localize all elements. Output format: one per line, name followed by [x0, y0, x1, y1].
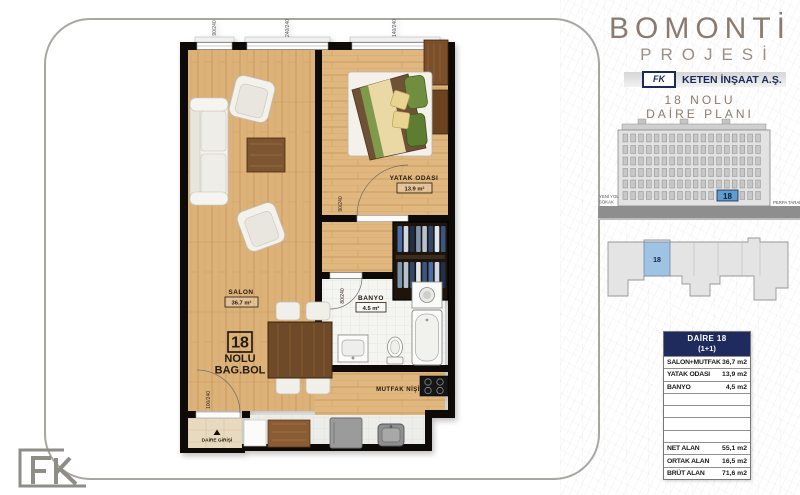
salon-label: SALON [228, 289, 253, 296]
row-value: 36,7 m2 [722, 359, 747, 366]
unit-table-title: DAİRE 18 [687, 334, 726, 344]
row-value: 55,1 m2 [722, 445, 747, 452]
company-logo-bar: FK KETEN İNŞAAT A.Ş. [624, 72, 786, 87]
hall-floor [322, 222, 393, 272]
coffee-table [247, 138, 285, 172]
bedroom-label: YATAK ODASI [390, 175, 439, 182]
window-sills [195, 37, 440, 42]
bathroom-label: BANYO [358, 295, 384, 302]
bedroom-door [357, 216, 408, 222]
building-elevation: 18 YENİ YOL SOKAK PERPA TARAFI [598, 114, 800, 228]
ground-strip [598, 206, 800, 218]
fk-logo-letter-f [33, 458, 51, 484]
stove [420, 376, 448, 396]
unit-mark-line1: NOLU [224, 353, 255, 365]
toilet [387, 337, 403, 364]
dim-bedroom-door: 90/240 [338, 196, 344, 212]
table-row [664, 430, 750, 442]
dim-window-mid: 240/240 [285, 19, 291, 37]
floor-plan: SALON 36.7 m² YATAK ODASI 13.9 m² BANYO … [170, 10, 470, 460]
entrance-label: DAİRE GİRİŞİ [202, 437, 233, 444]
dim-entry-door: 100/240 [206, 391, 212, 409]
page: SALON 36.7 m² YATAK ODASI 13.9 m² BANYO … [0, 0, 800, 495]
row-label: NET ALAN [667, 445, 700, 452]
row-value: 13,9 m2 [722, 371, 747, 378]
table-row: YATAK ODASI 13,9 m2 [664, 368, 750, 380]
floor-plate-outline [608, 238, 788, 300]
plate-unit-number: 18 [653, 257, 661, 264]
unit-info-table: DAİRE 18 (1+1) SALON+MUTFAK 36,7 m2 YATA… [663, 331, 751, 480]
salon-area: 36.7 m² [232, 300, 252, 307]
roof [622, 124, 766, 130]
sofa [190, 98, 228, 205]
table-row [664, 393, 750, 405]
row-value: 71,6 m2 [722, 470, 747, 477]
fk-footer-logo [6, 446, 90, 492]
kitchen-cabinet-wood [268, 420, 310, 447]
fk-logo-letter-k [56, 458, 76, 484]
floor-plate: 18 [598, 228, 800, 318]
bed [348, 72, 432, 160]
bathroom-sink [338, 335, 368, 362]
table-row: ORTAK ALAN 16,5 m2 [664, 454, 750, 466]
project-title: BOMONTİ [600, 12, 800, 46]
ground-edge [598, 218, 800, 220]
info-panel: BOMONTİ PROJESİ FK KETEN İNŞAAT A.Ş. 18 … [560, 0, 800, 495]
elevation-unit-number: 18 [723, 192, 732, 201]
kitchen-label: MUTFAK NİŞİ [376, 386, 420, 393]
row-label: SALON+MUTFAK [667, 359, 721, 366]
row-value: 4,5 m2 [726, 384, 747, 391]
row-label: BANYO [667, 384, 691, 391]
row-label: YATAK ODASI [667, 371, 710, 378]
plan-number-label: 18 NOLU [600, 93, 800, 107]
row-label: ORTAK ALAN [667, 458, 709, 465]
bathroom-area: 4.5 m² [363, 305, 380, 312]
kitchen-cabinet-white [244, 420, 266, 446]
entry-door [196, 412, 240, 418]
table-row: BRÜT ALAN 71,6 m2 [664, 467, 750, 479]
dim-window-right: 140/240 [392, 19, 398, 37]
row-label: BRÜT ALAN [667, 470, 705, 477]
bedroom-area: 13.9 m² [405, 186, 425, 193]
fk-logo-frame [20, 450, 86, 486]
table-row [664, 405, 750, 417]
unit-mark-number: 18 [231, 335, 249, 352]
bathtub [412, 310, 442, 365]
table-row [664, 417, 750, 429]
street-label-2: SOKAK [599, 200, 614, 205]
side-label: PERPA TARAFI [773, 200, 800, 205]
dining-table [268, 302, 332, 394]
washing-machine [412, 282, 442, 308]
company-name: KETEN İNŞAAT A.Ş. [682, 74, 782, 86]
street-label-1: YENİ YOL [599, 194, 619, 199]
row-value: 16,5 m2 [722, 458, 747, 465]
table-row: SALON+MUTFAK 36,7 m2 [664, 356, 750, 368]
bathroom-door [330, 273, 362, 279]
unit-table-type: (1+1) [698, 344, 716, 353]
dim-window-left: 90/240 [212, 20, 218, 36]
unit-mark-line2: BAG.BOL [215, 365, 266, 377]
table-row: BANYO 4,5 m2 [664, 381, 750, 393]
project-subtitle: PROJESİ [600, 45, 800, 65]
fk-logo-small: FK [642, 71, 676, 88]
dim-bath-door: 80/240 [340, 288, 346, 304]
unit-table-header: DAİRE 18 (1+1) [664, 332, 750, 356]
fridge [330, 418, 362, 448]
table-row: NET ALAN 55,1 m2 [664, 442, 750, 454]
kitchen-sink [378, 424, 404, 446]
